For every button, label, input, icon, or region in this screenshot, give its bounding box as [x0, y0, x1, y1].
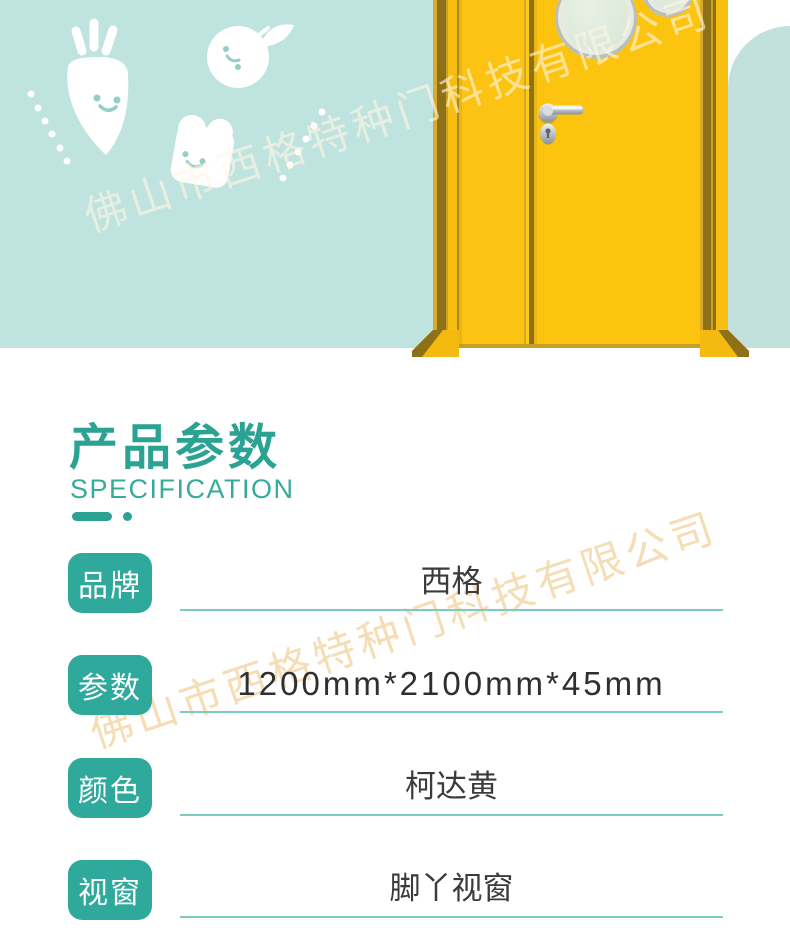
spec-label-badge: 品牌 — [68, 553, 152, 613]
company-watermark-bottom: 佛山市西格特种门科技有限公司 — [85, 504, 724, 756]
section-title: 产品参数 — [69, 408, 281, 479]
row-underline — [180, 814, 723, 816]
door-lock — [540, 124, 556, 145]
row-underline — [180, 711, 723, 713]
title-underline-dash — [72, 512, 112, 521]
spec-value: 1200mm*2100mm*45mm — [180, 655, 723, 713]
spec-label-badge: 颜色 — [68, 758, 152, 818]
spec-label-badge: 视窗 — [68, 860, 152, 920]
door-frame-foot-left — [412, 330, 459, 357]
door-frame-right — [700, 0, 728, 348]
spec-value: 脚丫视窗 — [180, 860, 723, 918]
spec-label-badge: 参数 — [68, 655, 152, 715]
door-frame-foot-right — [700, 330, 749, 357]
door-leaf-small — [459, 0, 527, 348]
door-gap — [526, 0, 537, 348]
row-underline — [180, 916, 723, 918]
spec-value: 柯达黄 — [180, 758, 723, 816]
carrot-icon — [67, 23, 128, 155]
tomato-icon — [207, 24, 294, 88]
dotted-line-right — [280, 109, 326, 182]
dotted-line-left — [28, 91, 71, 165]
spec-row-color: 颜色 柯达黄 — [68, 758, 723, 818]
spec-row-window: 视窗 脚丫视窗 — [68, 860, 723, 920]
section-subtitle: SPECIFICATION — [70, 474, 295, 505]
spec-row-brand: 品牌 西格 — [68, 553, 723, 613]
food-illustrations — [10, 15, 340, 195]
door-frame-left — [433, 0, 459, 348]
toast-icon — [169, 112, 238, 190]
title-underline-dot — [123, 512, 132, 521]
row-underline — [180, 609, 723, 611]
door-illustration — [407, 0, 753, 360]
spec-value: 西格 — [180, 553, 723, 611]
product-spec-page: 佛山市西格特种门科技有限公司 佛山市西格特种门科技有限公司 产品参数 SPECI… — [0, 0, 790, 937]
spec-row-dimensions: 参数 1200mm*2100mm*45mm — [68, 655, 723, 715]
